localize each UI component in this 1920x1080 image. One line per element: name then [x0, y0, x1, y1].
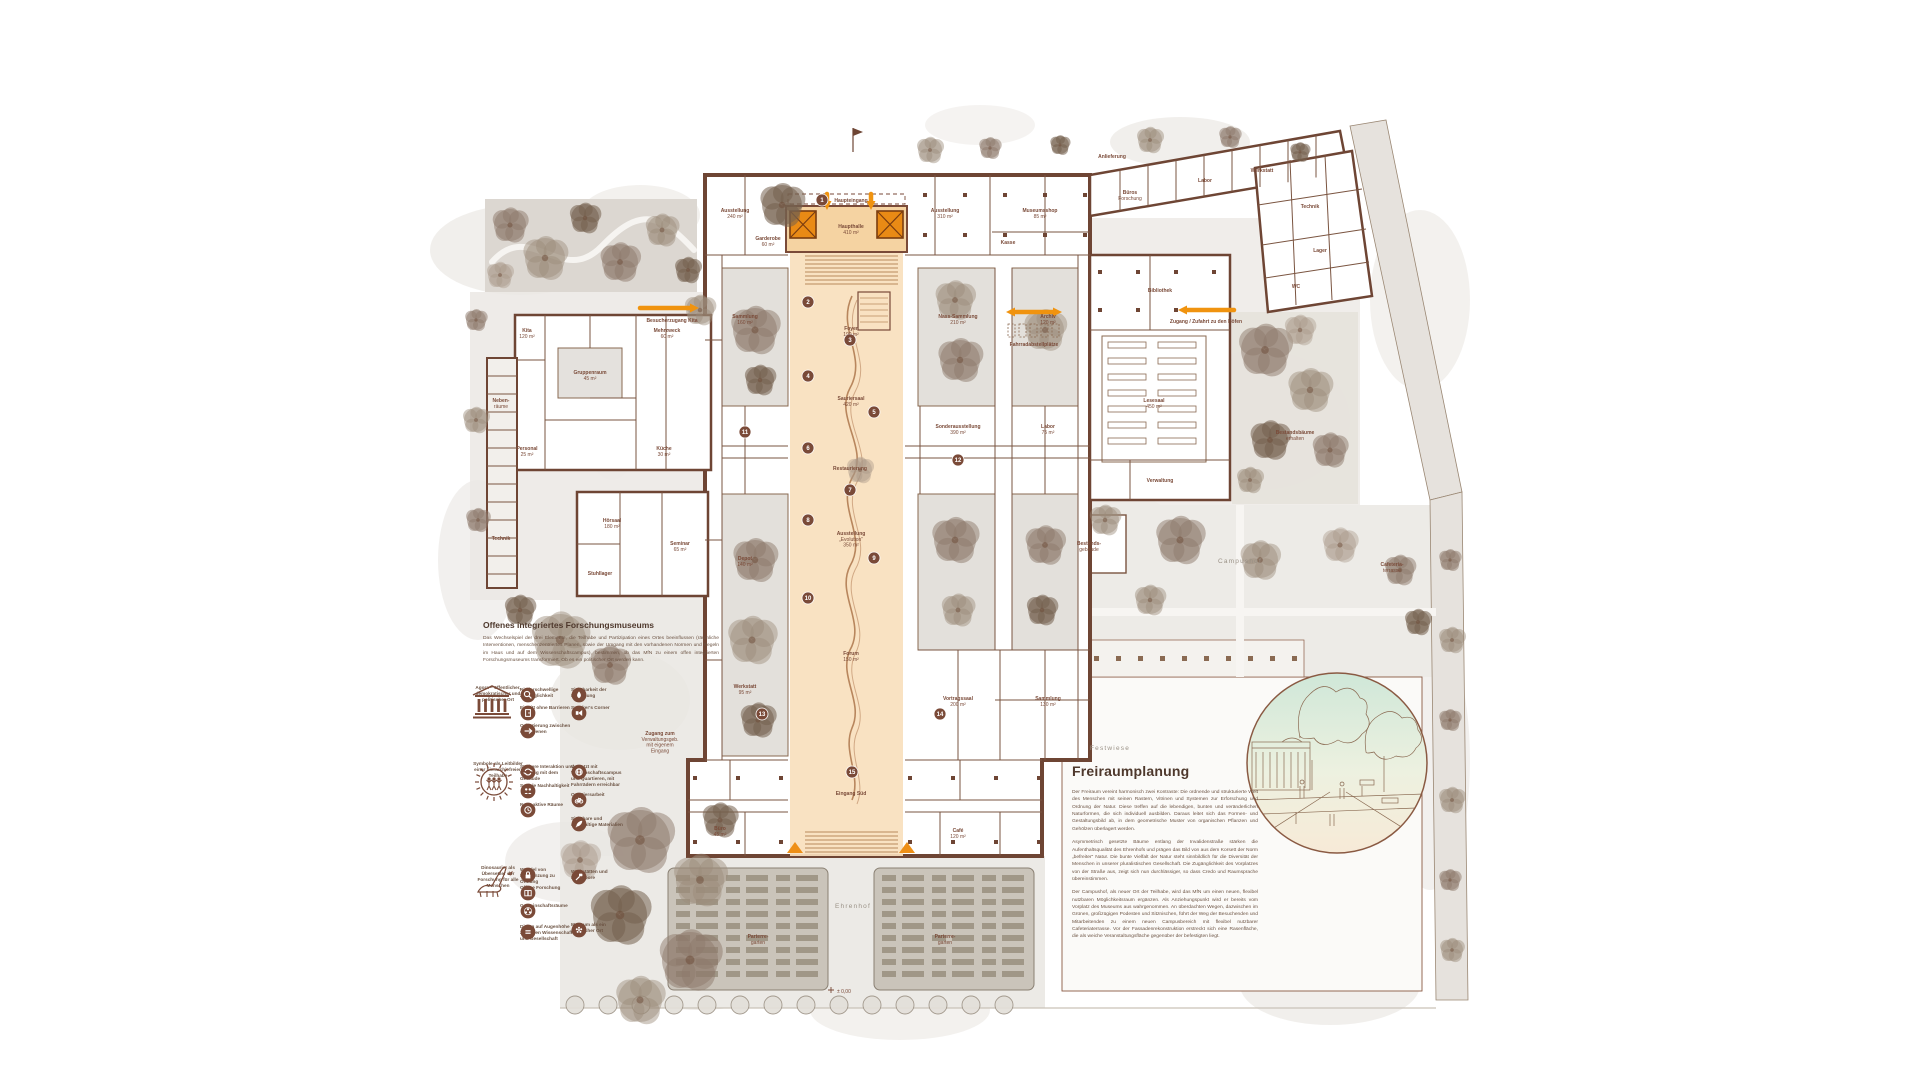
zone-label: Campushof	[1218, 558, 1262, 565]
svg-text:14: 14	[937, 712, 944, 718]
room-label: Anlieferung	[1098, 154, 1126, 160]
legend-item: Gemeinschaftsräume	[520, 903, 574, 909]
corner-block	[1255, 151, 1372, 312]
room-label: Labor75 m²	[1041, 424, 1055, 436]
legend-pillar: Dinosaurier als Übersetzer der Forschung…	[470, 862, 526, 889]
room-label: Haupteingang	[834, 198, 867, 204]
arrow-label: Fahrradabstellplätze	[1010, 342, 1059, 348]
freiraumplanung-title: Freiraumplanung	[1072, 763, 1258, 779]
arrow-label: Zugang / Zufahrt zu den Höfen	[1170, 319, 1242, 325]
leaf-icon	[571, 816, 587, 832]
legend-item: Niederschwellige Zugänglichkeit	[520, 687, 574, 699]
west-annex-strip	[487, 358, 517, 588]
room-label: Foyer190 m²	[843, 326, 859, 338]
svg-text:12: 12	[955, 458, 962, 464]
legend-item: Orientierung zwischen den Ebenen	[520, 723, 574, 735]
arrow-label: Besucherzugang Kita	[646, 318, 697, 324]
room-label: Lager	[1313, 248, 1327, 254]
room-label: Neben-räume	[493, 398, 510, 410]
plan-marker: 1	[816, 194, 828, 206]
svg-text:13: 13	[759, 712, 766, 718]
room-label: Restaurierung	[833, 466, 867, 472]
tree	[745, 365, 777, 396]
speaker-icon	[571, 705, 587, 721]
tree	[675, 257, 702, 283]
plan-marker: 4	[802, 370, 814, 382]
freiraumplanung-block: Freiraumplanung Der Freiraum vereint har…	[1072, 763, 1258, 947]
tree	[1156, 516, 1206, 564]
tree	[741, 702, 777, 737]
tree	[570, 203, 602, 234]
book-icon	[520, 885, 536, 901]
plan-marker: 14	[934, 708, 946, 720]
legend-item: Werkstätten und Reallabore	[571, 869, 625, 881]
tree	[674, 854, 728, 907]
concept-title: Offenes integriertes Forschungsmuseums	[483, 620, 719, 630]
tree	[601, 242, 642, 282]
flower-icon	[571, 922, 587, 938]
tree	[1239, 324, 1293, 377]
tree	[463, 407, 490, 433]
room-label: Werkstatt	[1251, 168, 1274, 174]
room-label: Hörsaal180 m²	[603, 518, 622, 530]
room-label: WC	[1292, 284, 1301, 290]
plan-marker: 7	[844, 484, 856, 496]
tree	[523, 236, 568, 280]
tree	[942, 594, 976, 627]
room-label: Stuhllager	[588, 571, 613, 577]
network-icon	[571, 764, 587, 780]
room-label: Bestands-gebäude	[1077, 541, 1102, 553]
legend-item: Museum als ein politischer Ort	[571, 922, 625, 934]
plan-marker: 8	[802, 514, 814, 526]
plan-marker: 12	[952, 454, 964, 466]
interaction-icon	[520, 764, 536, 780]
tree	[1323, 527, 1359, 562]
tree	[1285, 315, 1316, 346]
sun-people-icon	[470, 758, 518, 806]
legend-item: Wandel von Eingrenzung zu Öffnung	[520, 867, 574, 885]
tree	[466, 508, 491, 532]
legend-item: Dialog auf Augenhöhe zwischen Wissenscha…	[520, 924, 574, 942]
site-plan-drawing: Besucherzugang KitaFahrradabstellplätzeZ…	[0, 0, 1920, 1080]
room-label: Verwaltung	[1147, 478, 1174, 484]
tree	[979, 137, 1002, 159]
room-label: Technik	[492, 536, 511, 542]
legend-item: Sichtbare und nachhaltige Materialien	[571, 816, 625, 828]
concept-text-block: Offenes integriertes Forschungsmuseums D…	[483, 620, 719, 664]
svg-text:10: 10	[805, 596, 812, 602]
tree	[616, 976, 666, 1024]
svg-text:15: 15	[849, 770, 856, 776]
tree	[1439, 627, 1466, 653]
tree	[932, 517, 979, 563]
magnifier-icon	[520, 687, 536, 703]
community-icon	[520, 903, 536, 919]
tree	[1439, 709, 1462, 731]
tree	[1290, 142, 1310, 162]
svg-text:11: 11	[742, 430, 749, 436]
tree	[728, 616, 778, 664]
plan-marker: 2	[802, 296, 814, 308]
plan-marker: 10	[802, 592, 814, 604]
legend-item: Vernetzt mit Wissenschaftscampus und Qua…	[571, 764, 625, 788]
plan-marker: 13	[756, 708, 768, 720]
tree	[1439, 869, 1462, 891]
room-label: Labor	[1198, 178, 1212, 184]
tree	[1050, 135, 1070, 155]
plan-marker: 6	[802, 442, 814, 454]
tree	[1026, 525, 1066, 565]
svg-text:± 0,00: ± 0,00	[837, 989, 851, 995]
lock-icon	[520, 867, 536, 883]
tree	[917, 137, 944, 163]
tree	[1405, 609, 1432, 635]
room-label: Bibliothek	[1148, 288, 1172, 294]
plan-marker: 5	[868, 406, 880, 418]
room-label: Archiv120 m²	[1040, 314, 1056, 326]
room-label: Eingang Süd	[836, 791, 867, 797]
legend-item: Quartiersarbeit	[571, 792, 625, 798]
room-label: Cafeteria-terrasse	[1380, 562, 1403, 574]
bike-icon	[571, 792, 587, 808]
tree	[1313, 432, 1349, 467]
room-label: Küche30 m²	[656, 446, 672, 458]
room-label: Kasse	[1001, 240, 1016, 246]
legend-item: Soziale Nachhaltigkeit	[520, 783, 574, 789]
tree	[1439, 549, 1462, 571]
workshop-icon	[571, 869, 587, 885]
tree	[1439, 787, 1466, 813]
room-label: Technik	[1301, 204, 1320, 210]
tree	[1288, 368, 1333, 412]
tree	[1135, 585, 1166, 616]
tree	[493, 207, 529, 242]
tree	[1219, 126, 1242, 148]
tree	[660, 929, 723, 991]
tree	[465, 309, 487, 331]
tree	[1237, 467, 1264, 493]
legend-item: Neue aktive Räume	[520, 802, 574, 808]
legend-item: Offene Forschung	[520, 885, 574, 891]
plan-marker: 15	[846, 766, 858, 778]
legend-item: Sichtbarkeit der Forschung	[571, 687, 625, 699]
freiraumplanung-paragraph: Asymmetrisch gesetzte Bäume entlang der …	[1072, 839, 1258, 883]
tree	[591, 885, 652, 944]
tree	[646, 214, 680, 247]
signpost-icon	[520, 723, 536, 739]
legend-item: Stärkere Interaktion und Umgang mit dem …	[520, 764, 574, 782]
room-label: Depot140 m²	[737, 556, 753, 568]
zone-label: Ehrenhof	[835, 903, 871, 910]
north-arrow-icon	[853, 128, 863, 152]
plan-marker: 11	[739, 426, 751, 438]
legend-item: Speaker's Corner	[571, 705, 625, 711]
legend-item: Eintritt ohne Barrieren	[520, 705, 574, 711]
dialog-icon	[520, 924, 536, 940]
temple-icon	[470, 682, 514, 722]
freiraumplanung-paragraph: Der Campushof, als neuer Ort der Teilhab…	[1072, 889, 1258, 941]
room-label: Forum150 m²	[843, 651, 859, 663]
room-label: Büro45 m²	[714, 826, 727, 838]
perspective-vignette	[1247, 673, 1427, 853]
tree	[760, 183, 805, 227]
zone-label: Festwiese	[1090, 745, 1130, 752]
freiraumplanung-paragraph: Der Freiraum vereint harmonisch zwei Kon…	[1072, 789, 1258, 833]
droplet-icon	[571, 687, 587, 703]
dinosaur-icon	[470, 862, 522, 902]
door-icon	[520, 705, 536, 721]
tree	[1137, 127, 1164, 153]
tree	[1440, 938, 1465, 962]
legend-pillar: Symbole als Leitbilder einer hierarchief…	[470, 758, 526, 779]
plan-marker: 9	[868, 552, 880, 564]
clock-icon	[520, 802, 536, 818]
people-icon	[520, 783, 536, 799]
competition-board: Besucherzugang KitaFahrradabstellplätzeZ…	[0, 0, 1920, 1080]
legend-pillar: Agora – öffentlicher, demokratischer und…	[470, 682, 526, 703]
tree	[1090, 505, 1121, 536]
concept-body: Das Wechselspiel der drei Elemente, die …	[483, 635, 719, 664]
tree	[1027, 595, 1058, 626]
freiraumplanung-body: Der Freiraum vereint harmonisch zwei Kon…	[1072, 789, 1258, 941]
tree	[938, 338, 983, 382]
tree	[487, 262, 514, 288]
